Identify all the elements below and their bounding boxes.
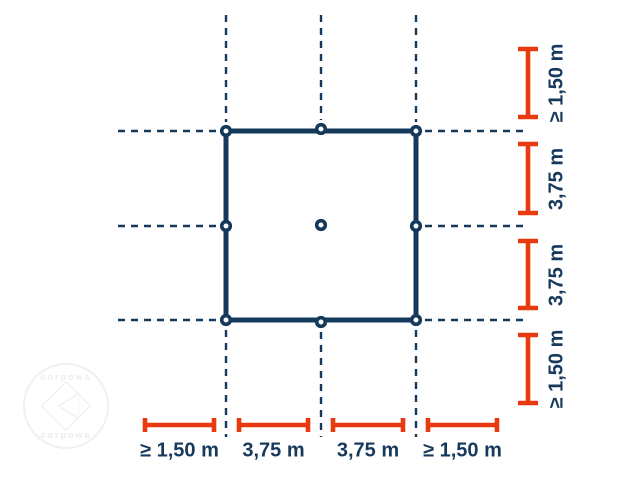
anchor-point-bottom-right xyxy=(412,316,421,325)
anchor-point-bottom-left xyxy=(222,316,231,325)
anchor-point-top-right xyxy=(412,127,421,136)
anchor-point-bottom-center xyxy=(317,318,326,327)
watermark-arc-text-bottom: corpowa xyxy=(40,430,91,440)
anchor-point-center xyxy=(317,221,326,230)
anchor-point-middle-left xyxy=(222,222,231,231)
watermark-logo: corpowa corpowa xyxy=(23,363,109,449)
watermark-arc-text-top: corpowa xyxy=(40,372,91,382)
watermark-diamond-icon xyxy=(36,376,96,436)
anchor-point-top-center xyxy=(317,125,326,134)
anchor-point-middle-right xyxy=(412,222,421,231)
spacing-diagram-stage: ≥ 1,50 m3,75 m3,75 m≥ 1,50 m≥ 1,50 m3,75… xyxy=(0,0,639,479)
anchor-point-top-left xyxy=(222,127,231,136)
